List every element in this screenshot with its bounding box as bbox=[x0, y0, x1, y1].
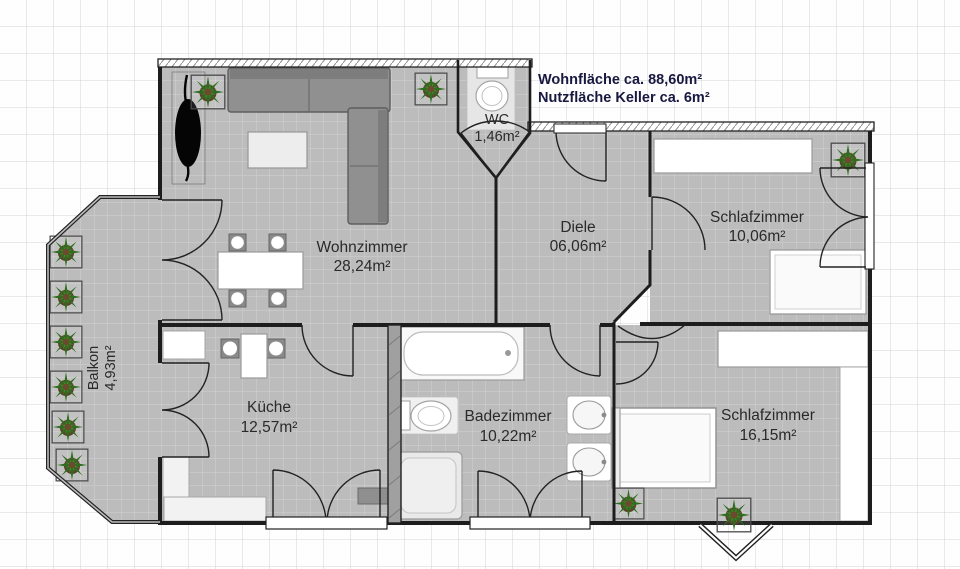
plant-icon bbox=[415, 73, 447, 105]
room-label-schlafzimmer-2: Schlafzimmer bbox=[721, 407, 815, 424]
room-label-wohnzimmer: Wohnzimmer bbox=[316, 239, 407, 256]
wardrobe-icon bbox=[840, 367, 868, 521]
wall bbox=[158, 324, 872, 325]
room-area-schlafzimmer-2: 16,15m² bbox=[740, 427, 797, 444]
plant-icon bbox=[56, 449, 88, 481]
sofa-back bbox=[230, 69, 388, 79]
floor-plan-drawing: Wohnzimmer 28,24m² Diele 06,06m² Schlafz… bbox=[0, 0, 960, 569]
room-label-diele: Diele bbox=[560, 219, 595, 236]
dining-table-icon bbox=[218, 252, 303, 289]
plant-icon bbox=[191, 75, 225, 109]
plant-icon bbox=[52, 411, 84, 443]
room-area-diele: 06,06m² bbox=[550, 238, 607, 255]
door-frame bbox=[865, 163, 874, 269]
room-area-wohnzimmer: 28,24m² bbox=[334, 258, 391, 275]
shaft-wall bbox=[388, 325, 401, 523]
plant-icon bbox=[831, 143, 865, 177]
toilet-icon bbox=[411, 401, 451, 431]
plant-icon bbox=[50, 281, 82, 313]
room-area-balkon: 4,93m² bbox=[103, 345, 119, 390]
threshold bbox=[266, 517, 387, 529]
room-area-badezimmer: 10,22m² bbox=[480, 428, 537, 445]
threshold bbox=[470, 517, 590, 529]
plant-icon bbox=[50, 326, 82, 358]
plant-icon bbox=[50, 371, 82, 403]
entrance-threshold bbox=[554, 124, 606, 133]
sofa-back bbox=[378, 110, 387, 222]
counter-icon bbox=[164, 497, 266, 521]
room-label-balkon-group: Balkon 4,93m² bbox=[86, 345, 119, 390]
room-label-kueche: Küche bbox=[247, 399, 291, 416]
stove-icon bbox=[358, 488, 388, 504]
room-label-balkon: Balkon bbox=[86, 346, 102, 390]
window-band bbox=[158, 59, 532, 67]
room-area-kueche: 12,57m² bbox=[241, 419, 298, 436]
room-label-wc: WC bbox=[485, 112, 509, 128]
room-label-badezimmer: Badezimmer bbox=[465, 408, 552, 425]
toilet-tank bbox=[477, 66, 508, 78]
toilet-icon bbox=[476, 81, 508, 111]
room-area-wc: 1,46m² bbox=[474, 129, 519, 145]
floor-plan-page: Wohnzimmer 28,24m² Diele 06,06m² Schlafz… bbox=[0, 0, 960, 569]
room-area-schlafzimmer-1: 10,06m² bbox=[729, 228, 786, 245]
title-line-1: Wohnfläche ca. 88,60m² bbox=[538, 72, 702, 88]
wardrobe-icon bbox=[654, 139, 812, 173]
kitchen-table-icon bbox=[241, 334, 267, 378]
wardrobe-icon bbox=[718, 331, 868, 367]
bathtub-faucet bbox=[505, 350, 511, 356]
plant-icon bbox=[717, 498, 751, 532]
title-line-2: Nutzfläche Keller ca. 6m² bbox=[538, 90, 710, 106]
kitchen-desk-icon bbox=[163, 331, 205, 359]
plant-icon bbox=[613, 488, 644, 519]
coffee-table-icon bbox=[248, 132, 307, 168]
room-label-schlafzimmer-1: Schlafzimmer bbox=[710, 209, 804, 226]
